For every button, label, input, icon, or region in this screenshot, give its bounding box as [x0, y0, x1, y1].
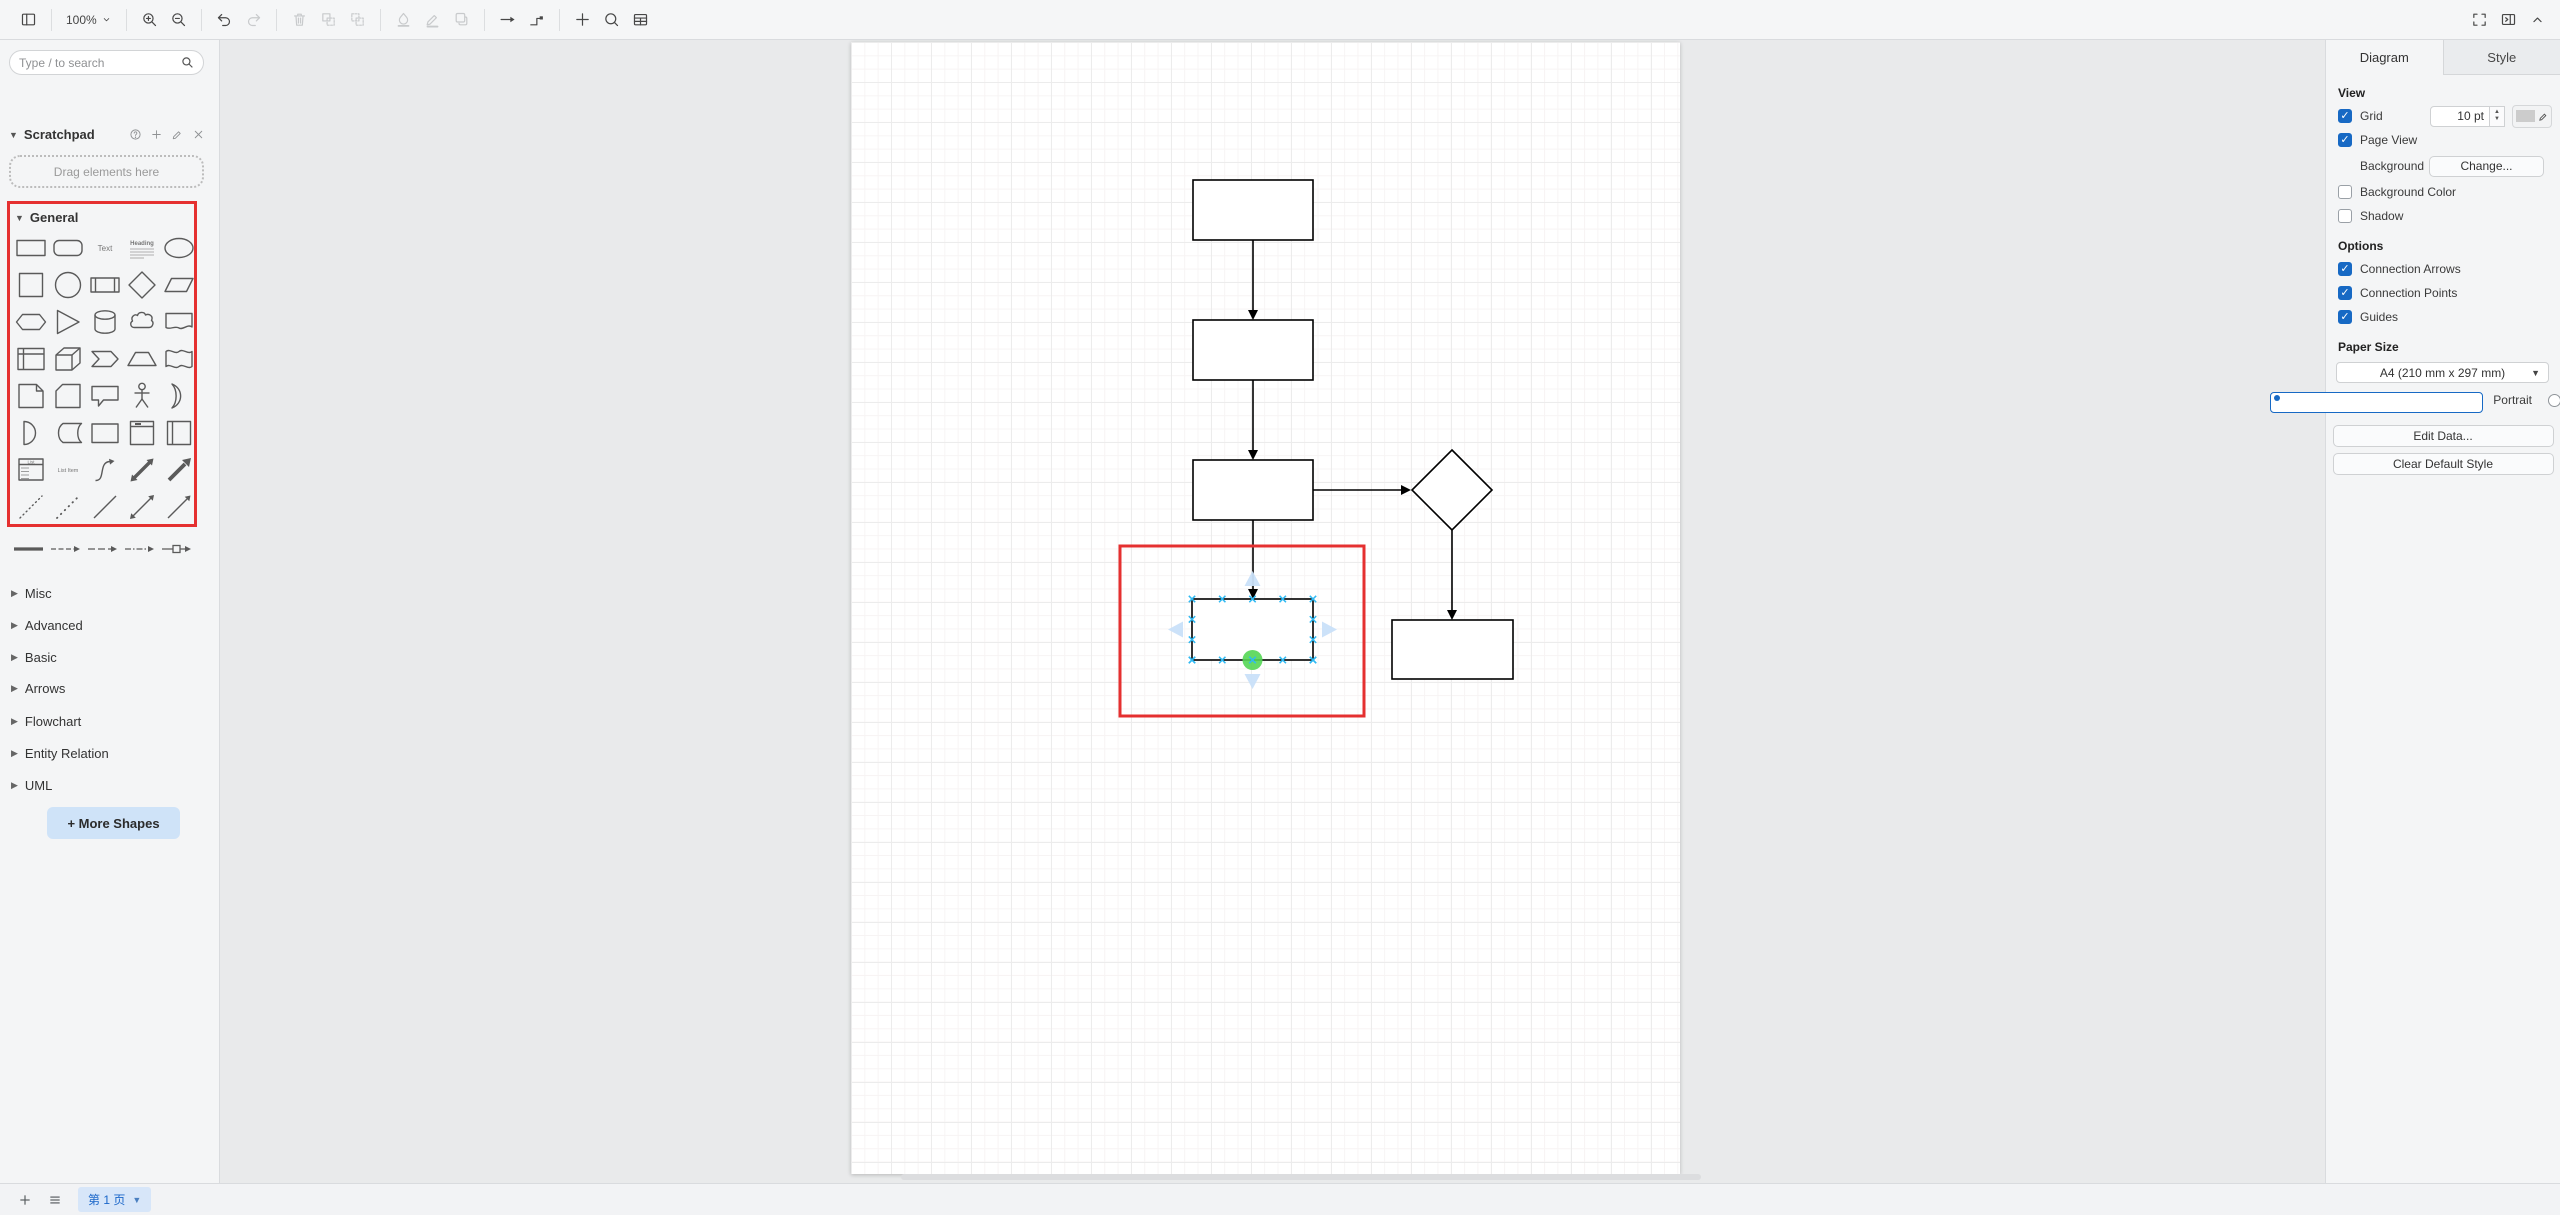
flow-node[interactable]: [1193, 460, 1313, 520]
shape-process[interactable]: [86, 266, 123, 303]
view-heading: View: [2326, 75, 2560, 104]
sidebar-toggle-icon: [20, 11, 37, 28]
shape-trapezoid[interactable]: [123, 340, 160, 377]
grid-checkbox[interactable]: ✓: [2338, 109, 2352, 123]
format-panel: Diagram Style View ✓ Grid ▲▼ ✓ Page View…: [2325, 40, 2560, 1183]
arrowhead-icon: [1248, 310, 1258, 320]
arrowhead-icon: [1447, 610, 1457, 620]
add-icon[interactable]: [150, 128, 163, 141]
close-icon[interactable]: [192, 128, 205, 141]
horizontal-scrollbar[interactable]: [901, 1174, 1701, 1180]
connection-button[interactable]: [493, 6, 522, 34]
grid-size-input[interactable]: [2430, 106, 2490, 127]
drawio-app: 100% ▼ Scratchpad Drag elements here ▼ G…: [0, 0, 2560, 1215]
to-front-icon: [320, 11, 337, 28]
tab-diagram[interactable]: Diagram: [2326, 40, 2443, 75]
shape-horizontal-container[interactable]: [160, 414, 197, 451]
more-shapes-button[interactable]: + More Shapes: [47, 807, 180, 839]
flow-node[interactable]: [1392, 620, 1513, 679]
general-section-highlighted: ▼ General TextHeadingListList Item: [7, 201, 197, 527]
section-label: Entity Relation: [25, 746, 109, 761]
arrowhead-icon: [1248, 450, 1258, 460]
shape-card[interactable]: [49, 377, 86, 414]
shape-callout[interactable]: [86, 377, 123, 414]
shadow-label: Shadow: [2360, 209, 2403, 223]
chevron-up-icon: [2529, 11, 2546, 28]
shape-vertical-container[interactable]: [123, 414, 160, 451]
shape-square[interactable]: [12, 266, 49, 303]
scratchpad-title: Scratchpad: [24, 127, 95, 142]
background-color-checkbox[interactable]: [2338, 185, 2352, 199]
grid-color-button[interactable]: [2512, 105, 2552, 128]
toolbar: 100%: [0, 0, 2560, 40]
page-view-label: Page View: [2360, 133, 2417, 147]
svg-text:Text: Text: [97, 244, 112, 253]
grid-row: ✓ Grid ▲▼: [2326, 104, 2560, 128]
waypoints-button[interactable]: [522, 6, 551, 34]
background-row: Background Change...: [2326, 152, 2560, 180]
edge-style-labeled-arrow[interactable]: [158, 538, 195, 560]
tab-style[interactable]: Style: [2443, 40, 2560, 75]
freehand-icon: [603, 11, 620, 28]
toolbar-separator: [201, 9, 202, 31]
shape-container[interactable]: [86, 414, 123, 451]
toolbar-separator: [559, 9, 560, 31]
shape-diamond[interactable]: [123, 266, 160, 303]
shape-hexagon[interactable]: [12, 303, 49, 340]
sidebar-section-basic[interactable]: ▶Basic: [0, 644, 219, 670]
shape-ellipse[interactable]: [160, 229, 197, 266]
freehand-button[interactable]: [597, 6, 626, 34]
expand-triangle-icon: ▶: [11, 716, 18, 727]
sidebar-section-advanced[interactable]: ▶Advanced: [0, 612, 219, 638]
background-color-label: Background Color: [2360, 185, 2456, 199]
add-page-button[interactable]: [18, 1193, 32, 1207]
toggle-format-panel-button[interactable]: [2494, 6, 2523, 34]
expand-triangle-icon: ▶: [11, 748, 18, 759]
shape-bidirectional-arrow[interactable]: [123, 451, 160, 488]
shadow-icon: [453, 11, 470, 28]
pages-menu-button[interactable]: [48, 1193, 62, 1207]
toolbar-separator: [126, 9, 127, 31]
svg-text:List Item: List Item: [57, 468, 78, 474]
to-back-button: [343, 6, 372, 34]
shape-tape[interactable]: [160, 340, 197, 377]
portrait-option[interactable]: Portrait: [2260, 388, 2532, 413]
direction-arrow-icon[interactable]: [1168, 622, 1183, 638]
shape-rectangle[interactable]: [12, 229, 49, 266]
plus-icon: [574, 11, 591, 28]
shadow-button: [447, 6, 476, 34]
general-title: General: [30, 210, 78, 225]
landscape-option[interactable]: Landscape: [2548, 393, 2560, 407]
edge-style-dash-dot-arrow[interactable]: [121, 538, 158, 560]
shape-cylinder[interactable]: [86, 303, 123, 340]
sidebar-section-uml[interactable]: ▶UML: [0, 772, 219, 798]
page-view-checkbox[interactable]: ✓: [2338, 133, 2352, 147]
panel-right-icon: [2500, 11, 2517, 28]
option-label: Connection Arrows: [2360, 262, 2461, 276]
shape-curve[interactable]: [86, 451, 123, 488]
expand-triangle-icon: ▶: [11, 620, 18, 631]
paper-size-heading: Paper Size: [2326, 329, 2560, 358]
shape-directional-connector[interactable]: [160, 488, 197, 525]
section-label: Flowchart: [25, 714, 81, 729]
edge-style-dashed-arrow[interactable]: [84, 538, 121, 560]
to-front-button: [314, 6, 343, 34]
waypoints-icon: [528, 11, 545, 28]
zoom-out-button[interactable]: [164, 6, 193, 34]
chevron-down-icon: ▼: [132, 1195, 141, 1205]
collapse-triangle-icon: ▼: [9, 130, 18, 140]
grid-color-swatch: [2516, 110, 2535, 122]
shape-list-item[interactable]: List Item: [49, 451, 86, 488]
section-label: Basic: [25, 650, 57, 665]
background-color-row: Background Color: [2326, 180, 2560, 204]
shape-arrow[interactable]: [160, 451, 197, 488]
expand-triangle-icon: ▶: [11, 780, 18, 791]
sidebar-section-arrows[interactable]: ▶Arrows: [0, 675, 219, 701]
sidebar-section-misc[interactable]: ▶Misc: [0, 580, 219, 606]
search-input[interactable]: [19, 56, 181, 70]
shape-actor[interactable]: [123, 377, 160, 414]
direction-arrow-icon[interactable]: [1245, 571, 1261, 586]
edge-style-thin-arrow[interactable]: [47, 538, 84, 560]
toolbar-separator: [380, 9, 381, 31]
shape-internal-storage[interactable]: [12, 340, 49, 377]
shape-search[interactable]: [9, 50, 204, 75]
format-tabs: Diagram Style: [2326, 40, 2560, 75]
general-header[interactable]: ▼ General: [10, 204, 194, 225]
edge-style-link[interactable]: [10, 538, 47, 560]
direction-arrow-icon[interactable]: [1322, 622, 1337, 638]
help-icon[interactable]: [129, 128, 142, 141]
option-label: Connection Points: [2360, 286, 2457, 300]
shape-textbox[interactable]: Heading: [123, 229, 160, 266]
guides-checkbox[interactable]: ✓: [2338, 310, 2352, 324]
shadow-row: Shadow: [2326, 204, 2560, 228]
zoom-out-icon: [170, 11, 187, 28]
hamburger-icon: [48, 1193, 62, 1207]
scratchpad-header[interactable]: ▼ Scratchpad: [9, 127, 209, 142]
shape-note[interactable]: [12, 377, 49, 414]
shape-step[interactable]: [86, 340, 123, 377]
sidebar-section-entity-relation[interactable]: ▶Entity Relation: [0, 740, 219, 766]
collapse-triangle-icon: ▼: [15, 213, 24, 223]
expand-triangle-icon: ▶: [11, 652, 18, 663]
option-row-guides: ✓Guides: [2326, 305, 2560, 329]
background-label: Background: [2360, 159, 2424, 173]
shape-dashed-line[interactable]: [12, 488, 49, 525]
orientation-row: Portrait Landscape: [2326, 387, 2560, 413]
direction-arrow-icon[interactable]: [1245, 674, 1261, 689]
section-label: Arrows: [25, 681, 65, 696]
flow-decision-node[interactable]: [1412, 450, 1492, 530]
line-color-icon: [424, 11, 441, 28]
section-label: Misc: [25, 586, 52, 601]
arrowhead-icon: [1401, 485, 1411, 495]
shape-text[interactable]: Text: [86, 229, 123, 266]
options-heading: Options: [2326, 228, 2560, 257]
shape-and[interactable]: [12, 414, 49, 451]
svg-text:Heading: Heading: [130, 241, 154, 247]
connection-arrow-icon: [499, 11, 516, 28]
option-label: Guides: [2360, 310, 2398, 324]
option-row-connection-points: ✓Connection Points: [2326, 281, 2560, 305]
to-back-icon: [349, 11, 366, 28]
fill-color-button: [389, 6, 418, 34]
change-background-button[interactable]: Change...: [2429, 156, 2544, 177]
line-color-button: [418, 6, 447, 34]
expand-triangle-icon: ▶: [11, 683, 18, 694]
shape-rounded-rectangle[interactable]: [49, 229, 86, 266]
shape-document[interactable]: [160, 303, 197, 340]
toolbar-separator: [51, 9, 52, 31]
edit-data-button[interactable]: Edit Data...: [2333, 425, 2554, 447]
clear-default-style-button[interactable]: Clear Default Style: [2333, 453, 2554, 475]
shape-bidirectional-connector[interactable]: [123, 488, 160, 525]
scratchpad-dropzone[interactable]: Drag elements here: [9, 155, 204, 188]
shapes-sidebar: ▼ Scratchpad Drag elements here ▼ Genera…: [0, 40, 220, 1183]
plus-icon: [18, 1193, 32, 1207]
portrait-label: Portrait: [2493, 393, 2532, 407]
grid-label: Grid: [2360, 109, 2383, 123]
fill-color-icon: [395, 11, 412, 28]
paper-size-value: A4 (210 mm x 297 mm): [2380, 366, 2505, 380]
fullscreen-button[interactable]: [2465, 6, 2494, 34]
toolbar-separator: [276, 9, 277, 31]
chevron-down-icon: ▼: [2531, 368, 2540, 378]
section-label: UML: [25, 778, 52, 793]
section-label: Advanced: [25, 618, 83, 633]
grid-size-stepper[interactable]: ▲▼: [2490, 106, 2505, 127]
pages-bar: 第 1 页 ▼: [0, 1183, 2560, 1215]
landscape-radio[interactable]: [2548, 394, 2560, 407]
table-icon: [632, 11, 649, 28]
redo-button: [239, 6, 268, 34]
connection-arrows-checkbox[interactable]: ✓: [2338, 262, 2352, 276]
shadow-checkbox[interactable]: [2338, 209, 2352, 223]
insert-button[interactable]: [568, 6, 597, 34]
zoom-in-button[interactable]: [135, 6, 164, 34]
shape-dotted-line[interactable]: [49, 488, 86, 525]
drop-hint: Drag elements here: [54, 165, 159, 179]
table-button[interactable]: [626, 6, 655, 34]
collapse-expand-button[interactable]: [2523, 6, 2552, 34]
page-tab-label: 第 1 页: [88, 1191, 125, 1208]
delete-button: [285, 6, 314, 34]
option-row-connection-arrows: ✓Connection Arrows: [2326, 257, 2560, 281]
redo-icon: [245, 11, 262, 28]
edit-color-icon: [2538, 111, 2549, 122]
zoom-in-icon: [141, 11, 158, 28]
toolbar-separator: [484, 9, 485, 31]
canvas[interactable]: [221, 40, 2325, 1183]
shape-line[interactable]: [86, 488, 123, 525]
toggle-shapes-panel-button[interactable]: [14, 6, 43, 34]
connection-points-checkbox[interactable]: ✓: [2338, 286, 2352, 300]
shape-triangle[interactable]: [49, 303, 86, 340]
shape-cloud[interactable]: [123, 303, 160, 340]
chevron-down-icon: [101, 14, 112, 25]
portrait-radio[interactable]: [2270, 392, 2483, 413]
search-icon: [181, 56, 194, 69]
paper-size-select[interactable]: A4 (210 mm x 297 mm) ▼: [2336, 362, 2549, 383]
shape-list[interactable]: List: [12, 451, 49, 488]
flow-node[interactable]: [1193, 180, 1313, 240]
shape-circle[interactable]: [49, 266, 86, 303]
shape-parallelogram[interactable]: [160, 266, 197, 303]
page-view-row: ✓ Page View: [2326, 128, 2560, 152]
sidebar-section-flowchart[interactable]: ▶Flowchart: [0, 708, 219, 734]
edit-icon[interactable]: [171, 128, 184, 141]
shape-data-storage[interactable]: [49, 414, 86, 451]
zoom-level-button[interactable]: 100%: [60, 6, 118, 34]
shape-or[interactable]: [160, 377, 197, 414]
drawing-page[interactable]: [851, 42, 1680, 1174]
expand-triangle-icon: ▶: [11, 588, 18, 599]
flow-node[interactable]: [1193, 320, 1313, 380]
trash-icon: [291, 11, 308, 28]
zoom-level-value: 100%: [66, 13, 97, 27]
shape-cube[interactable]: [49, 340, 86, 377]
fullscreen-icon: [2471, 11, 2488, 28]
page-tab-1[interactable]: 第 1 页 ▼: [78, 1187, 151, 1212]
undo-icon: [216, 11, 233, 28]
svg-text:List: List: [27, 459, 35, 464]
undo-button[interactable]: [210, 6, 239, 34]
